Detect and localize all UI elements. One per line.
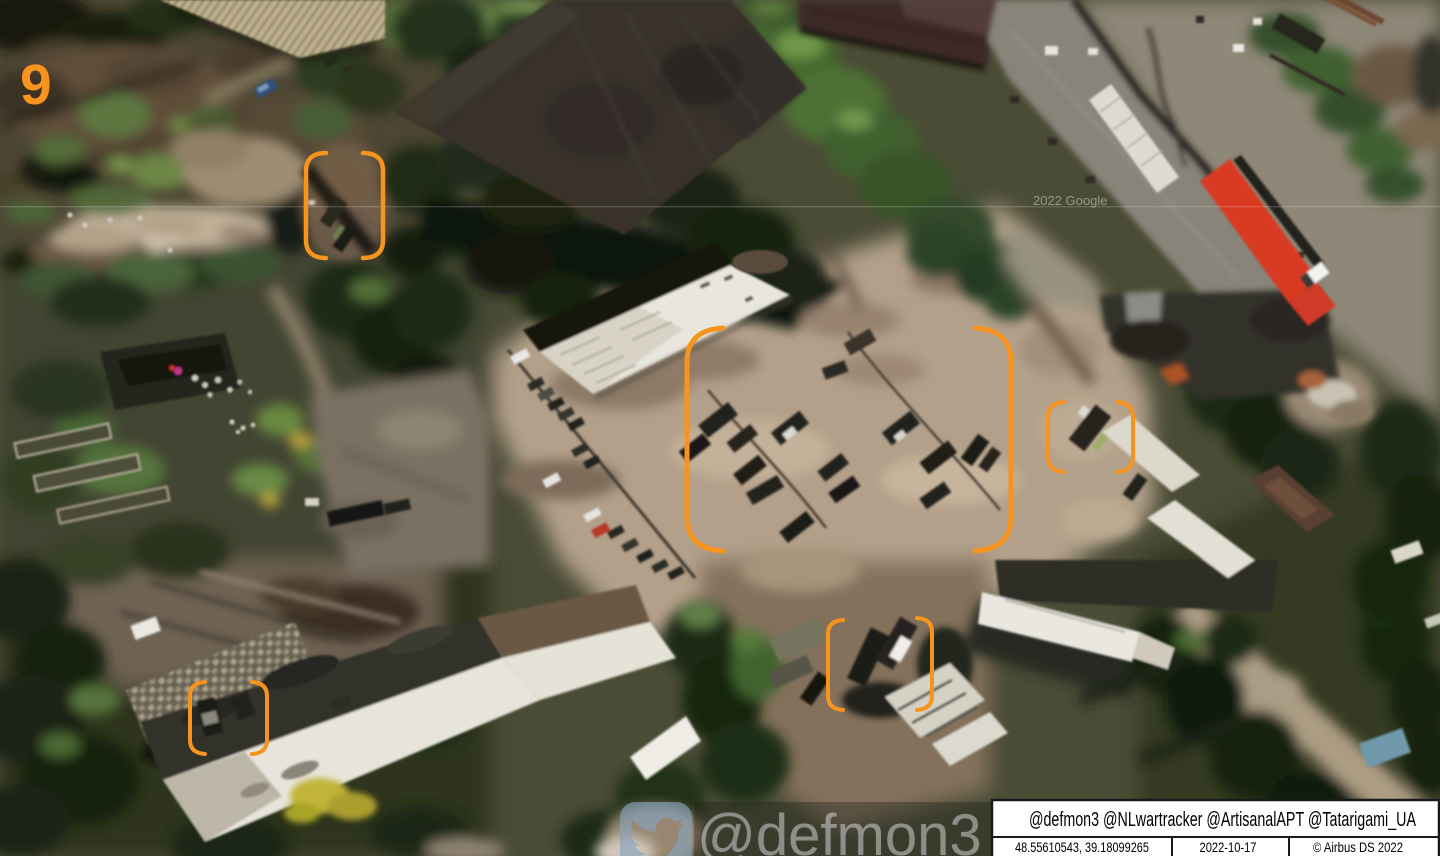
svg-text:9: 9 <box>20 53 52 117</box>
svg-text:2022-10-17: 2022-10-17 <box>1200 840 1257 855</box>
svg-text:@defmon3: @defmon3 <box>697 803 982 856</box>
svg-text:@defmon3 @NLwartracker @Artisa: @defmon3 @NLwartracker @ArtisanalAPT @Ta… <box>1029 809 1416 831</box>
svg-text:2022 Google: 2022 Google <box>1033 193 1107 208</box>
svg-text:© Airbus DS 2022: © Airbus DS 2022 <box>1313 840 1403 855</box>
svg-text:48.55610543, 39.18099265: 48.55610543, 39.18099265 <box>1015 840 1149 855</box>
